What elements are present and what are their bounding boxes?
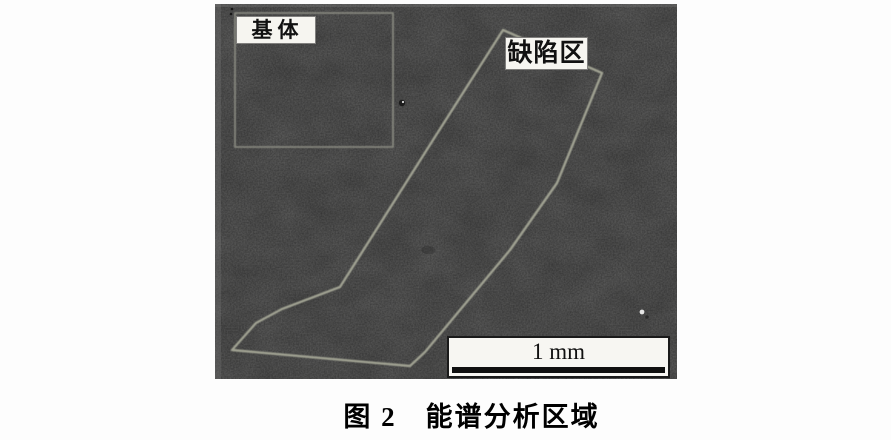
- dust-speck: [645, 315, 649, 319]
- dust-speck: [640, 310, 645, 315]
- sem-image-canvas: [215, 4, 677, 379]
- sem-mottle-texture: [215, 4, 677, 379]
- scale-bar-text: 1 mm: [449, 338, 668, 366]
- dust-speck: [399, 100, 405, 106]
- dust-speck: [230, 13, 233, 16]
- dust-speck: [231, 8, 234, 11]
- scale-bar-line: [452, 367, 665, 373]
- dust-speck: [402, 101, 404, 103]
- defect-region-label: 缺陷区: [505, 37, 588, 70]
- scan-edge-artifact-left: [215, 4, 221, 379]
- figure-caption: 图 2 能谱分析区域: [26, 403, 891, 433]
- matrix-region-label: 基体: [236, 16, 316, 44]
- scan-edge-artifact-top: [215, 4, 677, 7]
- dark-smudge: [421, 246, 435, 254]
- figure-page: 基体 缺陷区 1 mm 图 2 能谱分析区域: [0, 0, 891, 440]
- scale-bar: 1 mm: [447, 336, 670, 378]
- sem-micrograph: 基体 缺陷区 1 mm: [215, 4, 677, 379]
